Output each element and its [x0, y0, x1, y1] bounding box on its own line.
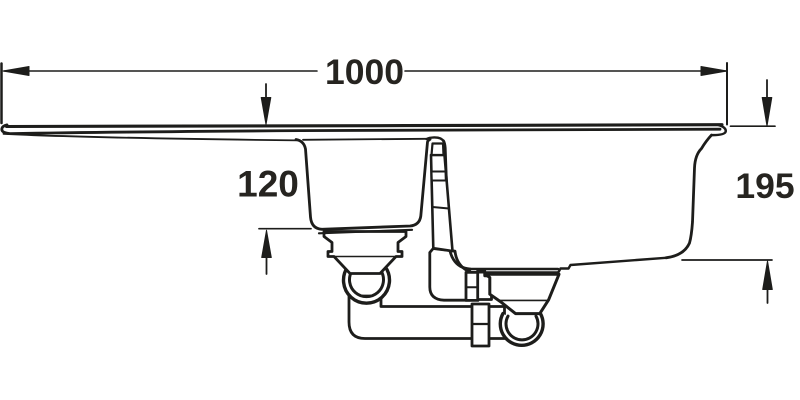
svg-text:120: 120 [237, 164, 299, 205]
svg-text:195: 195 [735, 166, 794, 206]
svg-text:1000: 1000 [325, 52, 404, 92]
